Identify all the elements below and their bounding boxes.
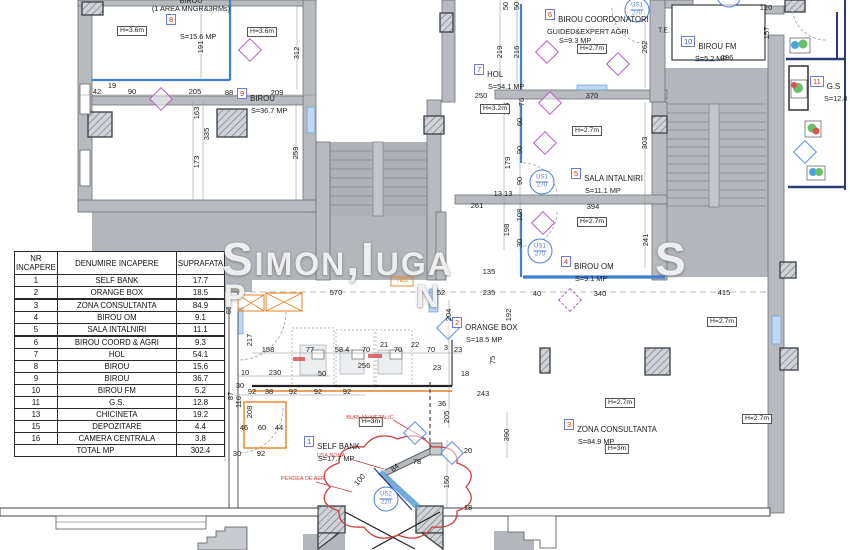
dimension-label: 241 bbox=[642, 234, 650, 247]
table-row: 13CHICINETA19.2 bbox=[15, 409, 225, 421]
door-tag-width: 270 bbox=[718, 0, 741, 3]
dimension-label: 38 bbox=[265, 388, 273, 396]
height-label: H=3.2m bbox=[480, 104, 510, 114]
table-cell: CHICINETA bbox=[57, 409, 176, 421]
door-tag: US1270 bbox=[528, 239, 553, 264]
room-area: S=18.5 MP bbox=[466, 335, 518, 344]
furniture bbox=[252, 328, 452, 386]
table-cell: 4.4 bbox=[176, 421, 224, 433]
dimension-label: 157 bbox=[763, 27, 771, 40]
table-cell: 9 bbox=[15, 373, 58, 385]
room-area: S=17.7 MP bbox=[318, 454, 360, 463]
table-row: 2ORANGE BOX18.5 bbox=[15, 287, 225, 300]
dimension-label: 22 bbox=[411, 341, 419, 349]
dimension-label: 205 bbox=[443, 411, 451, 424]
table-cell: 9.1 bbox=[176, 312, 224, 324]
dimension-label: 261 bbox=[471, 202, 484, 210]
room-tag: 6BIROU COORDONATORIGUIDED&EXPERT AGRIS=9… bbox=[545, 9, 649, 45]
table-cell: 6 bbox=[15, 336, 58, 349]
annotation-note: PERDEA DE AER bbox=[281, 476, 325, 482]
room-tag: 9BIROUS=36.7 MP bbox=[237, 88, 287, 115]
dimension-label: 303 bbox=[641, 137, 649, 150]
height-label: H=2.7m bbox=[577, 44, 607, 54]
dimension-label: 216 bbox=[513, 46, 521, 59]
table-cell: 19.2 bbox=[176, 409, 224, 421]
room-legend-table: NR INCAPEREDENUMIRE INCAPERESUPRAFATA1SE… bbox=[14, 251, 225, 457]
dimension-label: 23 bbox=[454, 346, 462, 354]
table-cell: 5.2 bbox=[176, 385, 224, 397]
table-header-cell: SUPRAFATA bbox=[176, 252, 224, 275]
dimension-label: 243 bbox=[477, 390, 490, 398]
height-label: H=2.7m bbox=[577, 217, 607, 227]
table-cell: 17.7 bbox=[176, 275, 224, 287]
dimension-label: 90 bbox=[516, 177, 524, 185]
height-label: H=3.6m bbox=[247, 27, 277, 37]
table-total-row: TOTAL MP302.4 bbox=[15, 445, 225, 457]
dimension-label: 390 bbox=[503, 429, 511, 442]
dimension-label: 50 bbox=[513, 2, 521, 10]
table-cell: ORANGE BOX bbox=[57, 287, 176, 300]
room-tag: 2ORANGE BOXS=18.5 MP bbox=[452, 317, 518, 344]
height-label: H=2.7m bbox=[707, 317, 737, 327]
table-cell: BIROU FM bbox=[57, 385, 176, 397]
table-cell: 12.8 bbox=[176, 397, 224, 409]
room-number: 2 bbox=[452, 317, 462, 328]
room-number: 6 bbox=[545, 9, 555, 20]
door-tag-code: US1 bbox=[536, 175, 549, 183]
table-header-cell: NR INCAPERE bbox=[15, 252, 58, 275]
room-name: ZONA CONSULTANTA bbox=[577, 425, 657, 434]
dimension-label: 19 bbox=[108, 82, 116, 90]
dimension-label: 65 bbox=[225, 306, 233, 314]
door-tag-width: 270 bbox=[531, 183, 554, 190]
table-row: 16CAMERA CENTRALA3.8 bbox=[15, 433, 225, 445]
dimension-label: 158 bbox=[262, 346, 275, 354]
table-cell: SALA INTALNIRI bbox=[57, 324, 176, 337]
dimension-label: 23 bbox=[433, 364, 441, 372]
dimension-label: 205 bbox=[189, 88, 202, 96]
room-name: ORANGE BOX bbox=[465, 323, 517, 332]
room-number: 4 bbox=[561, 256, 571, 267]
dimension-label: 78 bbox=[413, 458, 421, 466]
table-row: 9BIROU36.7 bbox=[15, 373, 225, 385]
door-tag: US1270 bbox=[530, 170, 555, 195]
dimension-label: 36 bbox=[438, 400, 446, 408]
staircase-center bbox=[330, 142, 427, 216]
room-area: S=9.1 MP bbox=[575, 274, 614, 283]
dimension-label: 70 bbox=[427, 346, 435, 354]
misc-label: T.E. bbox=[658, 28, 670, 35]
dimension-label: 191 bbox=[197, 41, 205, 54]
room-area: S=9.3 MP bbox=[559, 36, 649, 45]
room-name: BIROU OM bbox=[574, 262, 613, 271]
table-cell: G.S. bbox=[57, 397, 176, 409]
room-name: BIROU FM bbox=[698, 42, 736, 51]
dimension-label: 335 bbox=[203, 128, 211, 141]
table-cell: 10 bbox=[15, 385, 58, 397]
dimension-label: 370 bbox=[586, 92, 599, 100]
table-cell: 8 bbox=[15, 361, 58, 373]
table-cell: BIROU OM bbox=[57, 312, 176, 324]
table-cell: 36.7 bbox=[176, 373, 224, 385]
dimension-label: 116 bbox=[235, 396, 243, 408]
room-name: BIROU COORDONATORI bbox=[558, 15, 649, 24]
table-row: 1SELF BANK17.7 bbox=[15, 275, 225, 287]
dimension-label: 230 bbox=[269, 369, 282, 377]
room-name: SELF BANK bbox=[317, 442, 360, 451]
table-row: 8BIROU15.6 bbox=[15, 361, 225, 373]
table-cell: 7 bbox=[15, 349, 58, 361]
dimension-label: 50 bbox=[502, 2, 510, 10]
table-row: 5SALA INTALNIRI11.1 bbox=[15, 324, 225, 337]
table-cell: 2 bbox=[15, 287, 58, 300]
room-tag: 1SELF BANKS=17.7 MP bbox=[304, 436, 360, 463]
room-tag: 3ZONA CONSULTANTAS=84.9 MP bbox=[564, 419, 657, 446]
room-tag: 10BIROU FMS=5.2 MP bbox=[681, 36, 736, 63]
room-number: 3 bbox=[564, 419, 574, 430]
dimension-label: 92 bbox=[248, 388, 256, 396]
dimension-label: 235 bbox=[483, 289, 496, 297]
table-row: 10BIROU FM5.2 bbox=[15, 385, 225, 397]
table-row: 11G.S.12.8 bbox=[15, 397, 225, 409]
dimension-label: 21 bbox=[380, 341, 388, 349]
dimension-label: 256 bbox=[358, 362, 371, 370]
table-row: 6BIROU COORD & AGRI9.3 bbox=[15, 336, 225, 349]
dimension-label: 570 bbox=[330, 289, 343, 297]
table-cell: 18.5 bbox=[176, 287, 224, 300]
dimension-label: 92 bbox=[289, 388, 297, 396]
dimension-label: 70 bbox=[394, 346, 402, 354]
dimension-label: 92 bbox=[343, 388, 351, 396]
room-name: (1 AREA MNGR&3RMs) bbox=[111, 5, 271, 13]
room-tag: 11G.SS=12.8 MP bbox=[810, 76, 850, 103]
dimension-label: 90 bbox=[516, 146, 524, 154]
dimension-label: 259 bbox=[292, 147, 300, 160]
room-name: HOL bbox=[487, 70, 503, 79]
dimension-label: 10 bbox=[241, 369, 249, 377]
dimension-label: 108 bbox=[516, 209, 524, 222]
dimension-label: 217 bbox=[246, 334, 254, 347]
room-name: BIROU bbox=[250, 94, 275, 103]
dimension-label: 76 bbox=[518, 98, 526, 106]
dimension-label: 90 bbox=[128, 88, 136, 96]
table-cell: BIROU bbox=[57, 361, 176, 373]
dimension-label: 50 bbox=[318, 370, 326, 378]
dimension-label: 40 bbox=[533, 290, 541, 298]
table-cell: TOTAL MP bbox=[15, 445, 177, 457]
dimension-label: 92 bbox=[257, 450, 265, 458]
door-tag-code: US2 bbox=[380, 492, 393, 500]
table-cell: 16 bbox=[15, 433, 58, 445]
table-cell: 15 bbox=[15, 421, 58, 433]
room-number: 9 bbox=[237, 88, 247, 99]
table-cell: BIROU bbox=[57, 373, 176, 385]
table-cell: 3 bbox=[15, 299, 58, 312]
table-cell: 11 bbox=[15, 397, 58, 409]
room-area: S=11.1 MP bbox=[585, 186, 643, 195]
height-label: H=2.7m bbox=[742, 414, 772, 424]
dimension-label: 312 bbox=[293, 47, 301, 60]
table-cell: 3.8 bbox=[176, 433, 224, 445]
room-area: S=36.7 MP bbox=[251, 106, 287, 115]
door-tag-code: US1 bbox=[534, 244, 547, 252]
dimension-label: 70 bbox=[362, 346, 370, 354]
dimension-label: 163 bbox=[193, 107, 201, 120]
dimension-label: 44 bbox=[275, 424, 283, 432]
room-name: SALA INTALNIRI bbox=[584, 174, 643, 183]
room-subname: GUIDED&EXPERT AGRI bbox=[547, 27, 649, 36]
table-cell: 1 bbox=[15, 275, 58, 287]
dimension-label: 42 bbox=[93, 88, 101, 96]
table-cell: 54.1 bbox=[176, 349, 224, 361]
height-label: H=2.7m bbox=[605, 398, 635, 408]
table-cell: 13 bbox=[15, 409, 58, 421]
dimension-label: 3 bbox=[444, 344, 448, 352]
height-label: H=3.6m bbox=[117, 26, 147, 36]
table-cell: 15.6 bbox=[176, 361, 224, 373]
dimension-label: 18 bbox=[461, 370, 469, 378]
dimension-label: 173 bbox=[193, 156, 201, 169]
dimension-label: 208 bbox=[246, 406, 254, 419]
dimension-label: 198 bbox=[503, 224, 511, 237]
door-tag-width: 270 bbox=[529, 252, 552, 259]
table-cell: 302.4 bbox=[176, 445, 224, 457]
table-header-row: NR INCAPEREDENUMIRE INCAPERESUPRAFATA bbox=[15, 252, 225, 275]
door-tag-width: 220 bbox=[375, 500, 398, 507]
dimension-label: 60 bbox=[258, 424, 266, 432]
room-area: S=12.8 MP bbox=[824, 94, 850, 103]
room-number: 8 bbox=[166, 14, 176, 25]
dimension-label: 58.4 bbox=[335, 346, 350, 354]
room-tag: 7HOLS=54.1 MP bbox=[474, 64, 524, 91]
annotation-note: BURLAN METALIC bbox=[346, 415, 393, 421]
table-row: 3ZONA CONSULTANTA84.9 bbox=[15, 299, 225, 312]
dimension-label: 120 bbox=[760, 4, 773, 12]
dimension-label: 60 bbox=[516, 118, 524, 126]
room-area: S=15.6 MP bbox=[180, 32, 216, 41]
dimension-label: 30 bbox=[516, 239, 524, 247]
dimension-label: 92 bbox=[314, 388, 322, 396]
dimension-label: 179 bbox=[504, 157, 512, 170]
room-number: 5 bbox=[571, 168, 581, 179]
dimension-label: 340 bbox=[594, 290, 607, 298]
room-tag: 5SALA INTALNIRIS=11.1 MP bbox=[571, 168, 643, 195]
table-cell: DEPOZITARE bbox=[57, 421, 176, 433]
table-row: 15DEPOZITARE4.4 bbox=[15, 421, 225, 433]
dimension-label: 46 bbox=[240, 424, 248, 432]
room-area: S=54.1 MP bbox=[488, 82, 524, 91]
table-cell: HOL bbox=[57, 349, 176, 361]
table-cell: 84.9 bbox=[176, 299, 224, 312]
table-row: 4BIROU OM9.1 bbox=[15, 312, 225, 324]
room-area: S=84.9 MP bbox=[578, 437, 657, 446]
dimension-label: 13 13 bbox=[494, 190, 513, 198]
table-cell: 4 bbox=[15, 312, 58, 324]
room-number: 10 bbox=[681, 36, 695, 47]
door-tag: US2220 bbox=[374, 487, 399, 512]
dimension-label: 150 bbox=[443, 476, 451, 489]
room-number: 1 bbox=[304, 436, 314, 447]
height-label: H=2.7m bbox=[572, 126, 602, 136]
dimension-label: 250 bbox=[475, 92, 488, 100]
dimension-label: 394 bbox=[587, 203, 600, 211]
dimension-label: 52 bbox=[437, 289, 445, 297]
table-row: 7HOL54.1 bbox=[15, 349, 225, 361]
dimension-label: 77 bbox=[306, 346, 314, 354]
floorplan-canvas: 4219902058820919131216333517325950502192… bbox=[0, 0, 850, 550]
room-tag: BIROU(1 AREA MNGR&3RMs)8S=15.6 MP bbox=[166, 14, 216, 41]
dimension-label: 30 bbox=[236, 382, 244, 390]
table-cell: 5 bbox=[15, 324, 58, 337]
room-number: 11 bbox=[810, 76, 824, 87]
misc-label: TEG bbox=[396, 278, 407, 284]
dimension-label: 135 bbox=[483, 268, 496, 276]
dimension-label: 219 bbox=[496, 46, 504, 59]
room-name: G.S bbox=[827, 82, 840, 91]
dimension-label: 20 bbox=[464, 447, 472, 455]
room-number: 7 bbox=[474, 64, 484, 75]
dimension-label: 75 bbox=[489, 356, 497, 364]
table-cell: CAMERA CENTRALA bbox=[57, 433, 176, 445]
room-area: S=5.2 MP bbox=[695, 54, 736, 63]
dimension-label: 415 bbox=[718, 289, 731, 297]
table-cell: SELF BANK bbox=[57, 275, 176, 287]
dimension-label: 88 bbox=[225, 89, 233, 97]
table-cell: 9.3 bbox=[176, 336, 224, 349]
dimension-label: 30 bbox=[233, 450, 241, 458]
room-tag: 4BIROU OMS=9.1 MP bbox=[561, 256, 614, 283]
table-header-cell: DENUMIRE INCAPERE bbox=[57, 252, 176, 275]
table-cell: ZONA CONSULTANTA bbox=[57, 299, 176, 312]
dimension-label: 18 bbox=[464, 504, 472, 512]
table-cell: 11.1 bbox=[176, 324, 224, 337]
table-cell: BIROU COORD & AGRI bbox=[57, 336, 176, 349]
